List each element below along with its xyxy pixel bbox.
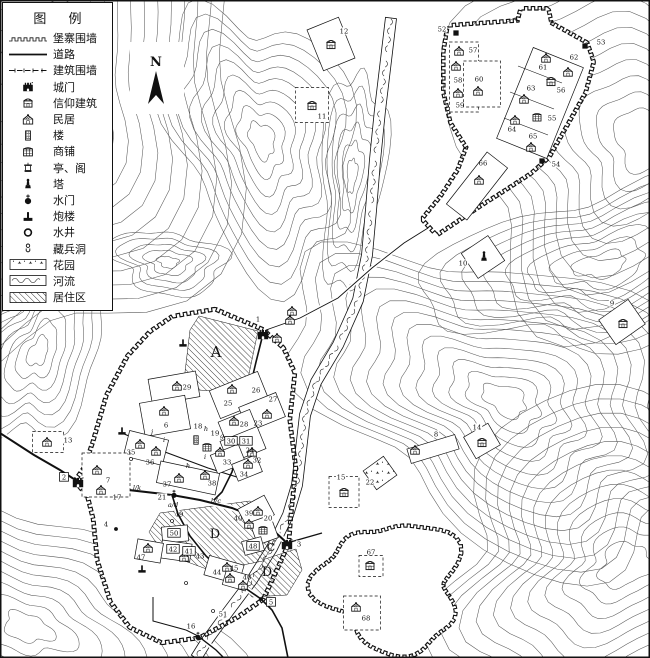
feature-label-47: 47 (137, 553, 146, 561)
feature-label-24: 24 (246, 446, 255, 454)
feature-well (129, 457, 132, 460)
feature-label-26: 26 (252, 386, 261, 394)
legend-item-house: 民居 (3, 111, 112, 127)
feature-shop-19 (203, 444, 211, 452)
feature-label-42: 42 (169, 545, 178, 553)
legend-item-label: 堡寨围墙 (53, 30, 97, 46)
feature-shop-20 (259, 527, 267, 535)
river-legend-symbol (3, 274, 53, 287)
feature-label-43: 43 (196, 552, 205, 560)
pagoda-legend-symbol (3, 177, 53, 190)
feature-label-54: 54 (552, 160, 561, 168)
wall-legend-symbol (3, 32, 53, 45)
feature-label-32: 32 (253, 456, 262, 464)
cave-legend-symbol (3, 242, 53, 255)
region-label-D-3: D (262, 565, 272, 580)
feature-label-9: 9 (610, 299, 614, 307)
feature-shop-55 (533, 114, 541, 122)
region-label-C-1: C (267, 541, 275, 554)
feature-label-55: 55 (548, 114, 557, 122)
feature-label-57: 57 (469, 46, 478, 54)
legend-item-label: 亭、阁 (53, 160, 86, 176)
feature-label-35: 35 (127, 448, 136, 456)
road-label-2: h (204, 425, 208, 433)
legend-item-cave: 藏兵洞 (3, 240, 112, 256)
feature-label-31: 31 (242, 437, 251, 445)
feature-label-23: 23 (254, 419, 263, 427)
paolou-legend-symbol (3, 210, 53, 223)
feature-label-38: 38 (208, 479, 217, 487)
feature-label-5: 5 (269, 598, 273, 606)
feature-well-49 (170, 519, 173, 522)
legend-item-label: 藏兵洞 (53, 241, 86, 257)
feature-house (273, 333, 282, 342)
feature-temple-11 (308, 101, 316, 109)
legend-item-label: 居住区 (53, 289, 86, 305)
well-legend-symbol (3, 226, 53, 239)
region-label-D-2: D (210, 527, 220, 542)
feature-label-3: 3 (297, 540, 301, 548)
feature-label-30: 30 (227, 437, 236, 445)
feature-label-41: 41 (185, 547, 194, 555)
legend-item-label: 建筑围墙 (53, 62, 97, 78)
watergate-legend-symbol (3, 193, 53, 206)
feature-label-64: 64 (508, 125, 517, 133)
lou-legend-symbol (3, 129, 53, 142)
feature-label-12: 12 (340, 27, 349, 35)
feature-label-45: 45 (230, 564, 239, 572)
legend-item-label: 楼 (53, 127, 64, 143)
feature-gatesq-54 (539, 158, 544, 163)
feature-label-46: 46 (243, 573, 252, 581)
feature-temple-14 (478, 438, 486, 446)
road-label-1: i (163, 436, 165, 444)
feature-label-19: 19 (211, 429, 220, 437)
feature-label-40: 40 (234, 514, 243, 522)
feature-dot-4 (114, 527, 118, 531)
feature-well (184, 581, 187, 584)
feature-label-4: 4 (104, 520, 108, 528)
legend-item-bldg-wall: 建筑围墙 (3, 62, 112, 78)
feature-label-65: 65 (529, 132, 538, 140)
legend-item-paolou: 炮楼 (3, 208, 112, 224)
legend-item-label: 城门 (53, 79, 75, 95)
road-label-6: a/d (168, 501, 178, 509)
feature-label-13: 13 (64, 436, 73, 444)
feature-well-51 (211, 609, 214, 612)
feature-gatesq-52 (453, 30, 458, 35)
feature-label-62: 62 (570, 53, 579, 61)
feature-gatesq-53 (582, 43, 587, 48)
feature-label-49: 49 (175, 510, 184, 518)
feature-label-16: 16 (187, 622, 196, 630)
legend-item-lou: 楼 (3, 127, 112, 143)
legend-item-pagoda: 塔 (3, 176, 112, 192)
legend-item-label: 花园 (53, 257, 75, 273)
feature-label-28: 28 (240, 420, 249, 428)
legend-panel: 图 例 堡寨围墙道路建筑围墙城门信仰建筑民居楼商铺亭、阁塔水门炮楼水井藏兵洞花园… (2, 2, 113, 311)
legend-item-label: 塔 (53, 176, 64, 192)
road-legend-symbol (3, 48, 53, 61)
garden-legend-symbol (3, 258, 53, 271)
region-label-A-0: A (210, 343, 222, 361)
feature-label-50: 50 (170, 529, 179, 537)
feature-label-18: 18 (194, 422, 203, 430)
feature-label-27: 27 (269, 395, 278, 403)
bldg-wall-legend-symbol (3, 64, 53, 77)
legend-item-residential: 居住区 (3, 289, 112, 305)
legend-item-label: 商铺 (53, 143, 75, 159)
feature-label-39: 39 (245, 509, 254, 517)
feature-temple-56 (547, 77, 555, 85)
legend-item-shop: 商铺 (3, 143, 112, 159)
legend-item-label: 河流 (53, 273, 75, 289)
residential-legend-symbol (3, 291, 53, 304)
feature-label-17: 17 (113, 493, 122, 501)
feature-temple-67 (366, 561, 374, 569)
feature-temple-15 (340, 488, 348, 496)
feature-label-52: 52 (438, 25, 447, 33)
feature-temple-9 (619, 319, 627, 327)
feature-label-68: 68 (362, 614, 371, 622)
house-legend-symbol (3, 113, 53, 126)
feature-label-21: 21 (158, 493, 167, 501)
legend-title: 图 例 (3, 3, 112, 30)
feature-label-25: 25 (224, 399, 233, 407)
legend-item-label: 民居 (53, 111, 75, 127)
shop-legend-symbol (3, 145, 53, 158)
feature-label-6: 6 (164, 421, 168, 429)
road-label-7: b/c (211, 497, 221, 505)
legend-item-pavilion: 亭、阁 (3, 160, 112, 176)
feature-house (288, 306, 297, 315)
legend-item-label: 水门 (53, 192, 75, 208)
road-label-8: l/k (133, 484, 141, 492)
feature-label-15: 15 (337, 473, 346, 481)
road-label-3: g (220, 432, 224, 440)
feature-label-20: 20 (264, 514, 273, 522)
feature-label-61: 61 (539, 63, 548, 71)
road-label-4: i (204, 453, 206, 461)
feature-label-8: 8 (434, 430, 438, 438)
legend-item-well: 水井 (3, 224, 112, 240)
feature-label-34: 34 (240, 470, 249, 478)
feature-label-14: 14 (473, 423, 482, 431)
feature-label-37: 37 (163, 480, 172, 488)
legend-item-river: 河流 (3, 273, 112, 289)
feature-label-56: 56 (557, 86, 566, 94)
feature-label-63: 63 (527, 84, 536, 92)
feature-label-11: 11 (318, 112, 327, 120)
legend-item-label: 水井 (53, 224, 75, 240)
legend-item-label: 炮楼 (53, 208, 75, 224)
feature-temple-12 (327, 40, 335, 48)
legend-item-gate: 城门 (3, 79, 112, 95)
feature-label-48: 48 (249, 542, 258, 550)
feature-house (286, 315, 295, 324)
legend-item-road: 道路 (3, 46, 112, 62)
feature-label-51: 51 (219, 610, 228, 618)
feature-label-66: 66 (479, 159, 488, 167)
feature-label-67: 67 (367, 548, 376, 556)
feature-label-53: 53 (597, 38, 606, 46)
feature-lou-18 (194, 436, 198, 444)
feature-label-2: 2 (62, 473, 66, 481)
temple-legend-symbol (3, 96, 53, 109)
feature-label-22: 22 (366, 478, 375, 486)
legend-item-label: 道路 (53, 46, 75, 62)
pavilion-legend-symbol (3, 161, 53, 174)
feature-label-59: 59 (456, 101, 465, 109)
legend-item-wall: 堡寨围墙 (3, 30, 112, 46)
historic-fortress-map: 1234567891011121314151617181920212223242… (0, 0, 650, 658)
feature-label-1: 1 (256, 315, 260, 323)
gate-legend-symbol (3, 80, 53, 93)
feature-label-60: 60 (475, 75, 484, 83)
feature-label-7: 7 (106, 476, 110, 484)
legend-item-garden: 花园 (3, 257, 112, 273)
legend-item-watergate: 水门 (3, 192, 112, 208)
legend-item-label: 信仰建筑 (53, 95, 97, 111)
feature-label-44: 44 (213, 568, 222, 576)
feature-label-36: 36 (146, 458, 155, 466)
feature-label-58: 58 (454, 76, 463, 84)
feature-label-29: 29 (183, 383, 192, 391)
road-label-5: h (186, 462, 190, 470)
feature-dot-5 (259, 597, 263, 601)
legend-item-temple: 信仰建筑 (3, 95, 112, 111)
feature-label-10: 10 (459, 259, 468, 267)
compass-label: N (150, 55, 162, 70)
feature-label-33: 33 (223, 458, 232, 466)
